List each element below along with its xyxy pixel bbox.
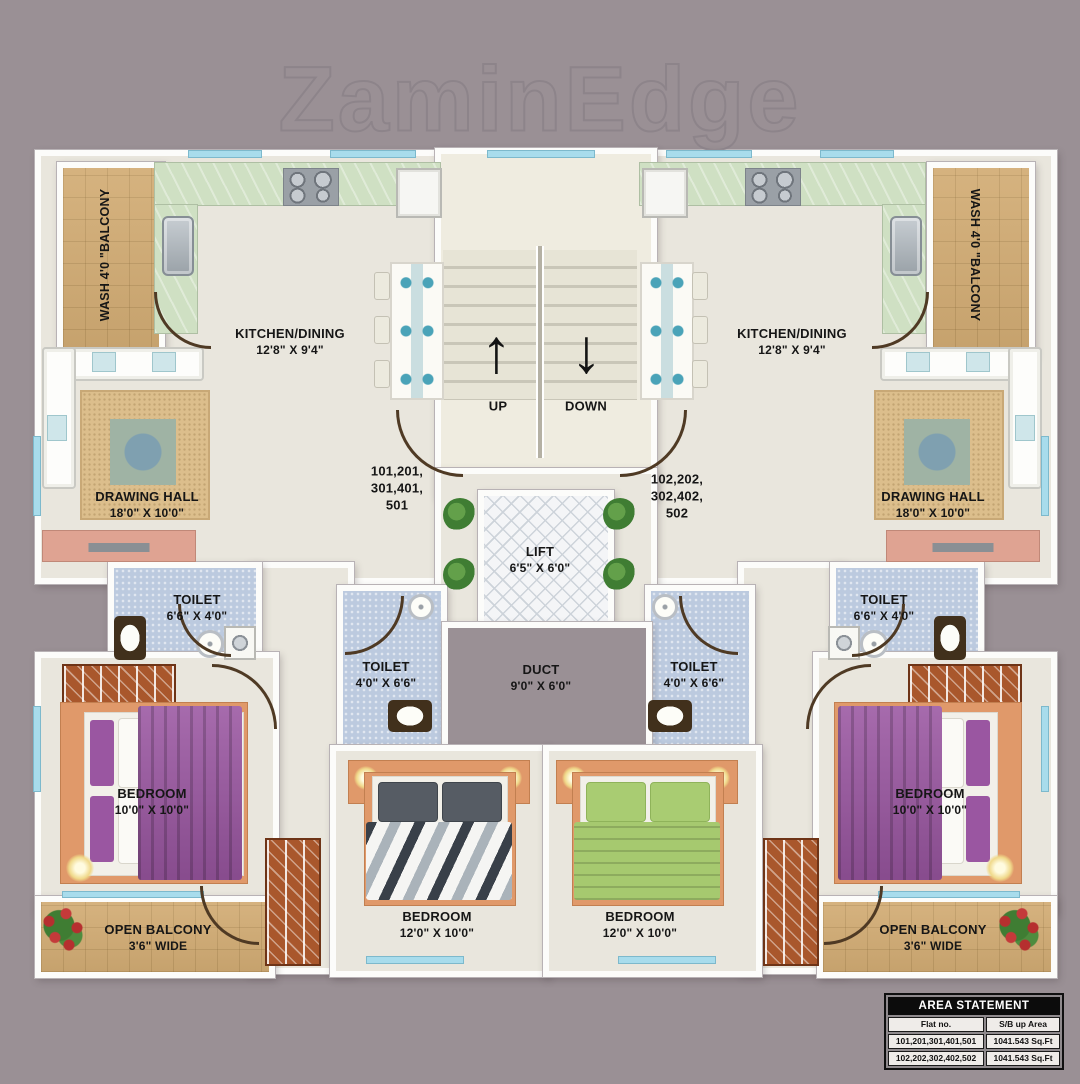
label-lift: LIFT 6'5" X 6'0"	[510, 544, 571, 576]
flat-numbers-left: 101,201, 301,401, 501	[371, 464, 423, 515]
label-open-balcony-right: OPEN BALCONY 3'6" WIDE	[879, 922, 986, 954]
area-statement-table: AREA STATEMENT Flat no. S/B up Area 101,…	[884, 993, 1064, 1070]
label-bedroom-mid-right: BEDROOM 12'0" X 10'0"	[603, 909, 677, 941]
area-row2-area: 1041.543 Sq.Ft	[986, 1051, 1060, 1066]
up-arrow-icon: ↑	[481, 320, 512, 384]
toilet-bowl	[934, 616, 966, 660]
tv-console-left	[42, 530, 196, 562]
dining-chair	[692, 316, 708, 344]
window	[878, 891, 1020, 898]
label-toilet-mid-left: TOILET 4'0" X 6'6"	[356, 659, 417, 691]
sofa-cushion	[152, 352, 176, 372]
pillow	[378, 782, 438, 822]
toilet-bowl	[114, 616, 146, 660]
dining-table-right	[640, 262, 694, 400]
pillow	[586, 782, 646, 822]
rug-center-right	[904, 419, 970, 485]
stair-down-label: DOWN	[565, 399, 607, 416]
stove-right	[745, 168, 801, 206]
rug-center-left	[110, 419, 176, 485]
area-row1-area: 1041.543 Sq.Ft	[986, 1034, 1060, 1049]
fridge-left	[396, 168, 442, 218]
label-toilet-mid-right: TOILET 4'0" X 6'6"	[664, 659, 725, 691]
area-statement-row: 102,202,302,402,502 1041.543 Sq.Ft	[888, 1051, 1060, 1066]
pillow	[90, 720, 114, 786]
blanket-chevron-mid-left	[366, 822, 512, 900]
dining-chair	[374, 316, 390, 344]
stove-left	[283, 168, 339, 206]
window	[330, 150, 416, 158]
label-bedroom-right: BEDROOM 10'0" X 10'0"	[893, 786, 967, 818]
kitchen-sink-left	[162, 216, 194, 276]
dining-chair	[374, 360, 390, 388]
window	[33, 706, 41, 792]
stair-divider	[536, 246, 544, 458]
dining-table-left	[390, 262, 444, 400]
toilet-bowl	[388, 700, 432, 732]
label-kitchen-right: KITCHEN/DINING 12'8" X 9'4"	[737, 326, 847, 358]
wardrobe-strip-left	[265, 838, 321, 966]
window	[820, 150, 894, 158]
area-statement-row: 101,201,301,401,501 1041.543 Sq.Ft	[888, 1034, 1060, 1049]
floor-plan-canvas: ZaminEdge ↑ ↓ UP DOWN	[0, 0, 1080, 1084]
area-row1-flat: 101,201,301,401,501	[888, 1034, 984, 1049]
pillow	[90, 796, 114, 862]
label-duct: DUCT 9'0" X 6'0"	[511, 662, 572, 694]
plant	[603, 558, 637, 592]
toilet-bowl	[648, 700, 692, 732]
fridge-right	[642, 168, 688, 218]
watermark-text: ZaminEdge	[279, 48, 802, 153]
window	[487, 150, 595, 158]
plant	[443, 498, 477, 532]
tv-console-right	[886, 530, 1040, 562]
label-wash-balcony-left: WASH 4'0 "BALCONY	[97, 189, 113, 321]
dining-chair	[692, 272, 708, 300]
area-col-sb-up-area: S/B up Area	[986, 1017, 1060, 1032]
blanket-green-mid-right	[574, 822, 720, 900]
window	[33, 436, 41, 516]
wash-basin	[408, 594, 434, 620]
label-toilet-right: TOILET 6'6" X 4'0"	[854, 592, 915, 624]
label-open-balcony-left: OPEN BALCONY 3'6" WIDE	[104, 922, 211, 954]
area-row2-flat: 102,202,302,402,502	[888, 1051, 984, 1066]
window	[1041, 706, 1049, 792]
label-bedroom-mid-left: BEDROOM 12'0" X 10'0"	[400, 909, 474, 941]
area-statement-header-row: Flat no. S/B up Area	[888, 1017, 1060, 1032]
pillow	[966, 720, 990, 786]
label-toilet-left: TOILET 6'6" X 4'0"	[167, 592, 228, 624]
label-drawing-left: DRAWING HALL 18'0" X 10'0"	[95, 489, 199, 521]
wash-basin	[652, 594, 678, 620]
wardrobe-strip-right	[763, 838, 819, 966]
label-bedroom-left: BEDROOM 10'0" X 10'0"	[115, 786, 189, 818]
window	[618, 956, 716, 964]
sofa-cushion	[47, 415, 67, 441]
bedside-lamp	[66, 854, 94, 882]
flat-numbers-right: 102,202, 302,402, 502	[651, 472, 703, 523]
flower-pot-right	[994, 904, 1044, 958]
area-statement-title: AREA STATEMENT	[888, 997, 1060, 1015]
window	[366, 956, 464, 964]
pillow	[650, 782, 710, 822]
window	[666, 150, 752, 158]
area-col-flat-no: Flat no.	[888, 1017, 984, 1032]
dining-chair	[374, 272, 390, 300]
sofa-cushion	[1015, 415, 1035, 441]
plant	[603, 498, 637, 532]
plant	[443, 558, 477, 592]
stair-up-label: UP	[489, 399, 507, 416]
label-kitchen-left: KITCHEN/DINING 12'8" X 9'4"	[235, 326, 345, 358]
flower-pot-left	[38, 904, 88, 958]
dining-chair	[692, 360, 708, 388]
label-wash-balcony-right: WASH 4'0 "BALCONY	[967, 189, 983, 321]
pillow	[966, 796, 990, 862]
kitchen-sink-right	[890, 216, 922, 276]
down-arrow-icon: ↓	[571, 320, 602, 384]
pillow	[442, 782, 502, 822]
window	[62, 891, 204, 898]
bedside-lamp	[986, 854, 1014, 882]
window	[188, 150, 262, 158]
sofa-cushion	[92, 352, 116, 372]
window	[1041, 436, 1049, 516]
sofa-cushion	[906, 352, 930, 372]
sofa-cushion	[966, 352, 990, 372]
label-drawing-right: DRAWING HALL 18'0" X 10'0"	[881, 489, 985, 521]
